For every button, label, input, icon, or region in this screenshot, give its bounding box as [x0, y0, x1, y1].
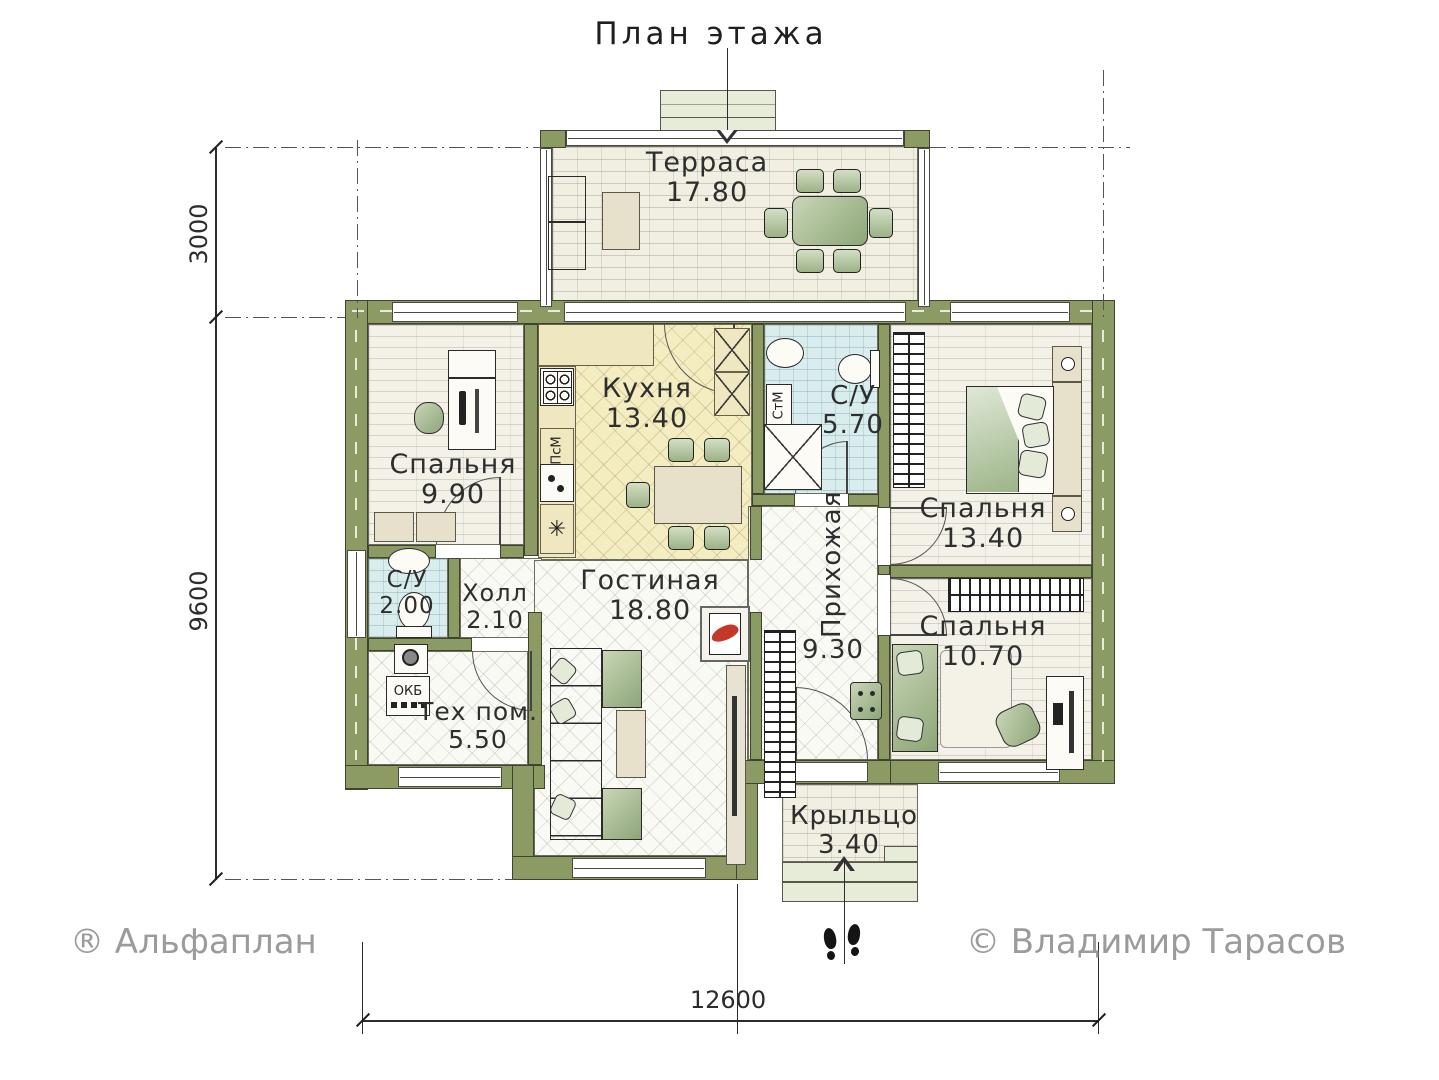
toilet-bowl — [838, 354, 872, 384]
wall-bedrooms-divider — [890, 565, 1092, 578]
room-label-bedroom-1070: Спальня 10.70 — [918, 612, 1048, 672]
door-leaf-bath-570 — [846, 441, 848, 494]
wall-entry-bedrooms-b — [878, 565, 890, 575]
toilet-tank — [396, 626, 432, 638]
author-watermark: © Владимир Тарасов — [966, 922, 1346, 962]
kitchen-chair — [626, 482, 650, 508]
window-bath-200 — [347, 550, 366, 638]
tv-screen — [732, 696, 737, 816]
boiler-unit — [394, 644, 428, 674]
desk-chair — [414, 402, 444, 434]
dimension-line-vertical — [215, 148, 217, 880]
room-area: 13.40 — [592, 404, 702, 434]
terrace-chair — [796, 249, 824, 273]
terrace-chair — [833, 169, 861, 193]
room-name: С/У — [368, 568, 446, 594]
shower — [764, 424, 822, 490]
wall-bath570-bottom-a — [752, 494, 795, 506]
room-name: Спальня — [918, 494, 1048, 524]
terrace-chair — [796, 169, 824, 193]
dishwasher-label: ПсМ — [549, 436, 564, 464]
entry-bench — [850, 682, 882, 720]
room-name: Терраса — [640, 148, 774, 178]
wall-kitchen-bath570 — [752, 324, 764, 494]
kitchen-sink — [540, 464, 574, 502]
room-area: 2.00 — [368, 594, 446, 620]
window-tech-room — [398, 767, 502, 787]
room-label-bath-200: С/У 2.00 — [368, 568, 446, 620]
wall-terrace-corner-right — [904, 130, 930, 148]
entrance-door-opening — [795, 762, 868, 782]
dimension-line-horizontal — [362, 1020, 1098, 1022]
brand-watermark: ® Альфаплан — [70, 922, 317, 962]
fridge-icon: ✳ — [540, 504, 574, 554]
wall-bedroom990-kitchen — [524, 324, 538, 556]
kitchen-chair — [668, 526, 694, 550]
nightstand — [1052, 496, 1082, 532]
room-area: 9.90 — [384, 480, 522, 510]
room-area: 13.40 — [918, 524, 1048, 554]
room-name: Холл — [458, 580, 532, 607]
room-area: 10.70 — [918, 642, 1048, 672]
desk-wardrobe — [448, 350, 496, 450]
sofa-chaise — [602, 650, 642, 708]
washing-machine-label: СтМ — [772, 391, 787, 419]
room-label-entry-hall-area: 9.30 — [798, 636, 868, 665]
room-label-bedroom-1340: Спальня 13.40 — [918, 494, 1048, 554]
coffee-table — [616, 710, 646, 778]
entrance-axis-line — [844, 858, 845, 964]
room-name: Гостиная — [570, 566, 730, 596]
tv-unit — [726, 665, 746, 865]
wall-living-entry-a — [750, 506, 762, 560]
wardrobe-rail — [948, 578, 1084, 612]
page-title: План этажа — [556, 16, 866, 52]
terrace-sofa — [548, 176, 586, 270]
fridge-glyph: ✳ — [548, 517, 566, 542]
extension-line — [225, 147, 543, 148]
kitchen-counter-top — [538, 324, 654, 366]
desk — [1046, 676, 1084, 770]
terrace-side-window-right — [918, 148, 930, 307]
wall-axis-dash — [1102, 330, 1104, 770]
window-bedroom-990 — [392, 302, 518, 322]
terrace-chair — [764, 208, 788, 238]
washing-machine: СтМ — [766, 384, 792, 426]
kitchen-chair — [704, 438, 730, 462]
room-label-bedroom-990: Спальня 9.90 — [384, 450, 522, 510]
bed-pillow-block — [374, 512, 414, 542]
terrace-arrow-inner — [720, 130, 734, 139]
bathroom-sink — [766, 338, 804, 368]
wardrobe-rail — [893, 332, 925, 488]
extension-line — [930, 147, 1130, 148]
terrace-axis-line — [727, 48, 728, 130]
room-name: Крыльцо — [790, 802, 908, 831]
wall-axis-dash — [355, 330, 357, 760]
porch-step — [782, 882, 918, 902]
dimension-value-9600: 9600 — [185, 556, 211, 646]
terrace-steps — [660, 90, 776, 132]
sofa-chaise — [602, 788, 642, 840]
room-area: 2.10 — [458, 607, 532, 634]
dimension-value-12600: 12600 — [658, 986, 798, 1014]
nightstand — [1052, 346, 1082, 382]
room-name: С/У — [815, 382, 891, 411]
terrace-chair — [833, 249, 861, 273]
room-name: Спальня — [384, 450, 522, 480]
axis-line — [1103, 70, 1104, 318]
wall-terrace-corner-left — [540, 130, 566, 148]
terrace-sliding-door — [564, 302, 906, 322]
room-name: Кухня — [592, 374, 702, 404]
room-label-hall: Холл 2.10 — [458, 580, 532, 634]
extension-line — [225, 879, 513, 880]
window-bedroom-1070 — [938, 762, 1060, 782]
room-area: 17.80 — [640, 178, 774, 208]
kitchen-tall-cabinet — [714, 328, 750, 372]
axis-line — [357, 140, 358, 318]
room-area: 18.80 — [570, 596, 730, 626]
room-label-porch: Крыльцо 3.40 — [790, 802, 908, 860]
window-living — [572, 858, 706, 878]
room-area: 5.50 — [416, 726, 540, 754]
room-label-entry-hall-name: Прихожая — [818, 512, 850, 638]
room-label-bath-570: С/У 5.70 — [815, 382, 891, 440]
room-label-living: Гостиная 18.80 — [570, 566, 730, 626]
room-name: Спальня — [918, 612, 1048, 642]
room-area: 9.30 — [802, 635, 864, 665]
room-name: Прихожая — [817, 491, 847, 638]
room-label-tech: Тех пом. 5.50 — [416, 698, 540, 754]
kitchen-chair — [704, 526, 730, 550]
floor-plan-canvas: План этажа — [0, 0, 1439, 1080]
terrace-dining-table — [792, 196, 868, 246]
double-bed — [966, 386, 1054, 494]
room-label-kitchen: Кухня 13.40 — [592, 374, 702, 434]
window-bedroom-1340 — [950, 302, 1070, 322]
kitchen-chair — [668, 438, 694, 462]
room-area: 3.40 — [790, 831, 908, 860]
kitchen-table — [654, 466, 742, 524]
kitchen-tall-cabinet — [714, 372, 750, 416]
dimension-value-3000: 3000 — [185, 189, 211, 279]
extension-line — [225, 317, 345, 318]
bed-pillow-block — [416, 512, 456, 542]
bed-base — [1052, 382, 1082, 496]
room-area: 5.70 — [815, 411, 891, 440]
room-label-terrace: Терраса 17.80 — [640, 148, 774, 208]
wardrobe-rail — [764, 630, 796, 798]
terrace-side-table — [602, 192, 640, 250]
wall-living-entry-b — [750, 612, 762, 760]
stove — [540, 368, 574, 406]
wall-bedroom990-bottom-b — [500, 545, 524, 558]
terrace-chair — [869, 208, 893, 238]
room-name: Тех пом. — [416, 698, 540, 726]
